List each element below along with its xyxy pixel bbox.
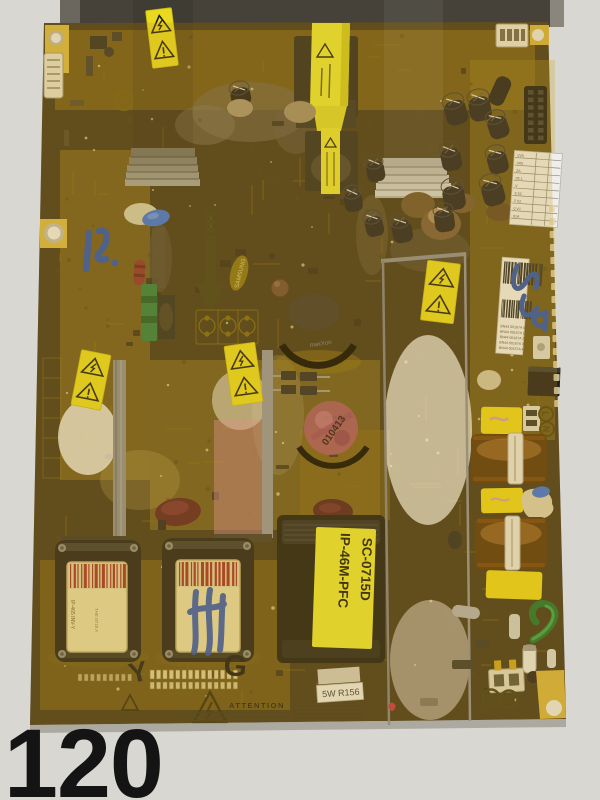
svg-text:120: 120 — [4, 709, 163, 800]
